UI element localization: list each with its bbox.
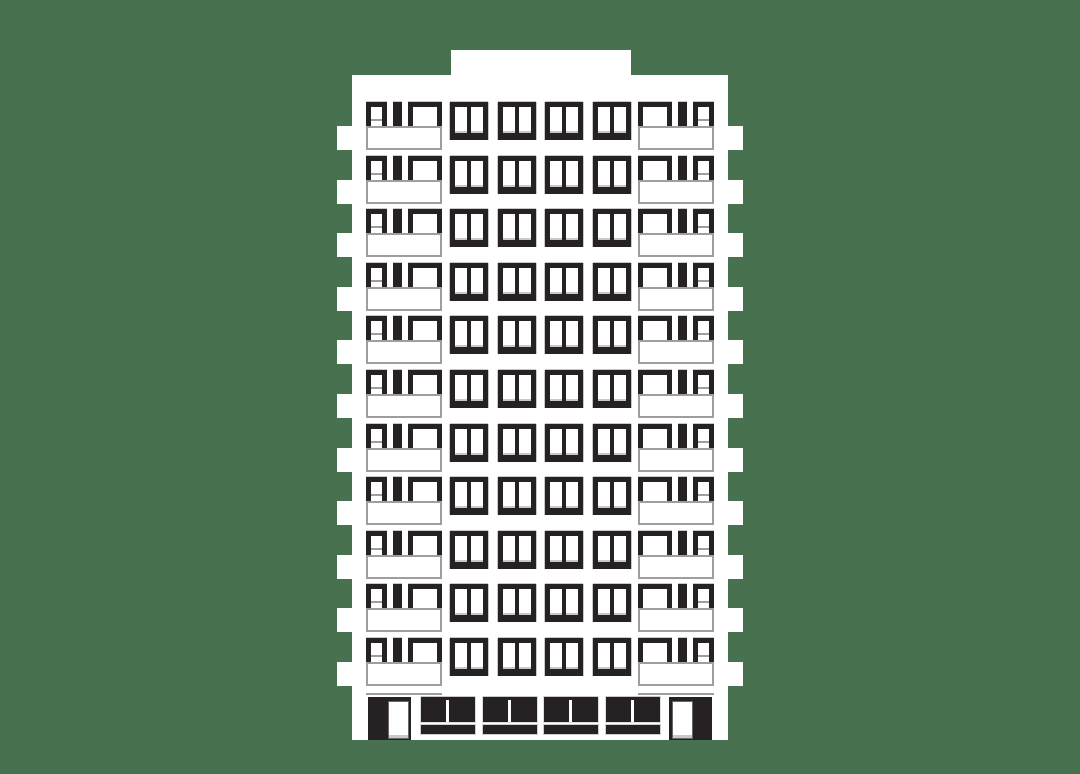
facade-window bbox=[545, 263, 583, 301]
balcony-railing bbox=[366, 448, 442, 472]
storefront-window bbox=[606, 697, 660, 722]
balcony-door bbox=[693, 531, 714, 557]
balcony-pillar bbox=[678, 584, 687, 610]
door-glass-divider bbox=[698, 226, 709, 228]
balcony-unit-right bbox=[638, 263, 714, 313]
balcony-window bbox=[408, 209, 442, 235]
balcony-window bbox=[408, 263, 442, 289]
window-pane-right bbox=[566, 214, 578, 240]
balcony-door-glass bbox=[371, 321, 382, 340]
balcony-railing bbox=[638, 501, 714, 525]
balcony-door bbox=[366, 477, 387, 503]
facade-window bbox=[450, 584, 488, 622]
facade-window bbox=[450, 424, 488, 462]
door-glass-divider bbox=[371, 494, 382, 496]
balcony-door-glass bbox=[371, 375, 382, 394]
door-glass-divider bbox=[371, 119, 382, 121]
balcony-railing bbox=[638, 287, 714, 311]
window-pane-left bbox=[455, 214, 467, 240]
balcony-window-pane bbox=[413, 589, 437, 610]
window-pane-left bbox=[455, 482, 467, 508]
building-facade bbox=[352, 75, 728, 740]
balcony-railing bbox=[366, 180, 442, 204]
balcony-window-pane bbox=[643, 107, 667, 128]
facade-window bbox=[498, 209, 536, 247]
storefront-window-divider bbox=[508, 700, 511, 722]
window-pane-left bbox=[503, 643, 515, 669]
balcony-window bbox=[408, 638, 442, 664]
facade-window bbox=[593, 263, 631, 301]
balcony-door-glass bbox=[698, 161, 709, 180]
facade-window bbox=[593, 316, 631, 354]
side-balcony-right bbox=[728, 448, 743, 472]
balcony-window bbox=[638, 209, 672, 235]
window-pane-left bbox=[598, 589, 610, 615]
facade-window bbox=[545, 638, 583, 676]
window-pane-right bbox=[566, 161, 578, 187]
balcony-window bbox=[408, 531, 442, 557]
balcony-door bbox=[693, 263, 714, 289]
balcony-window bbox=[638, 477, 672, 503]
side-balcony-left bbox=[337, 287, 352, 311]
balcony-window-pane bbox=[643, 589, 667, 610]
balcony-pillar bbox=[678, 209, 687, 235]
facade-window bbox=[593, 370, 631, 408]
balcony-window bbox=[408, 316, 442, 342]
balcony-unit-right bbox=[638, 424, 714, 474]
window-pane-right bbox=[471, 268, 483, 294]
facade-window bbox=[545, 316, 583, 354]
balcony-railing bbox=[366, 394, 442, 418]
balcony-railing bbox=[366, 608, 442, 632]
balcony-unit-right bbox=[638, 638, 714, 688]
balcony-pillar bbox=[393, 156, 402, 182]
window-pane-right bbox=[566, 107, 578, 133]
balcony-window-pane bbox=[643, 375, 667, 396]
facade-window bbox=[498, 156, 536, 194]
balcony-window bbox=[638, 531, 672, 557]
window-pane-left bbox=[455, 536, 467, 562]
balcony-pillar bbox=[678, 370, 687, 396]
side-balcony-left bbox=[337, 608, 352, 632]
balcony-railing bbox=[366, 287, 442, 311]
window-pane-left bbox=[598, 214, 610, 240]
side-balcony-right bbox=[728, 501, 743, 525]
facade-window bbox=[545, 102, 583, 140]
floor-row bbox=[352, 316, 728, 370]
balcony-pillar bbox=[678, 477, 687, 503]
storefront-window-divider bbox=[569, 700, 572, 722]
balcony-window bbox=[638, 638, 672, 664]
rooftop-structure bbox=[451, 50, 631, 76]
facade-window bbox=[545, 477, 583, 515]
balcony-window-pane bbox=[643, 429, 667, 450]
door-glass-divider bbox=[698, 387, 709, 389]
storefront bbox=[544, 697, 598, 740]
door-glass-divider bbox=[371, 280, 382, 282]
window-pane-left bbox=[550, 214, 562, 240]
balcony-door-glass bbox=[698, 214, 709, 233]
balcony-door-glass bbox=[371, 589, 382, 608]
balcony-door-glass bbox=[698, 375, 709, 394]
entrance-left bbox=[368, 697, 411, 740]
balcony-railing bbox=[638, 448, 714, 472]
balcony-door-glass bbox=[371, 643, 382, 662]
balcony-window-pane bbox=[413, 321, 437, 342]
balcony-window bbox=[638, 584, 672, 610]
balcony-unit-left bbox=[366, 102, 442, 152]
balcony-pillar bbox=[393, 316, 402, 342]
balcony-door bbox=[693, 477, 714, 503]
window-pane-left bbox=[503, 536, 515, 562]
balcony-pillar bbox=[678, 263, 687, 289]
balcony-pillar bbox=[393, 477, 402, 503]
facade-window bbox=[593, 638, 631, 676]
balcony-window-pane bbox=[413, 268, 437, 289]
balcony-door bbox=[366, 102, 387, 128]
side-balcony-left bbox=[337, 662, 352, 686]
window-pane-right bbox=[471, 536, 483, 562]
door-glass-divider bbox=[371, 441, 382, 443]
window-pane-right bbox=[471, 321, 483, 347]
door-glass-divider bbox=[698, 173, 709, 175]
balcony-window-pane bbox=[643, 643, 667, 664]
storefront-sign-band bbox=[421, 725, 475, 734]
door-glass-divider bbox=[698, 280, 709, 282]
window-pane-right bbox=[471, 214, 483, 240]
window-pane-left bbox=[503, 107, 515, 133]
facade-window bbox=[545, 531, 583, 569]
balcony-window bbox=[408, 102, 442, 128]
balcony-window bbox=[638, 316, 672, 342]
balcony-door bbox=[693, 209, 714, 235]
balcony-railing bbox=[366, 662, 442, 686]
window-pane-right bbox=[614, 161, 626, 187]
facade-window bbox=[593, 209, 631, 247]
balcony-unit-left bbox=[366, 424, 442, 474]
balcony-window-pane bbox=[413, 107, 437, 128]
balcony-unit-right bbox=[638, 102, 714, 152]
balcony-door bbox=[366, 531, 387, 557]
window-pane-left bbox=[455, 589, 467, 615]
side-balcony-right bbox=[728, 233, 743, 257]
floor-row bbox=[352, 102, 728, 156]
window-pane-right bbox=[471, 589, 483, 615]
window-pane-right bbox=[519, 107, 531, 133]
window-pane-right bbox=[614, 268, 626, 294]
balcony-window bbox=[638, 263, 672, 289]
balcony-door bbox=[366, 263, 387, 289]
balcony-railing bbox=[366, 126, 442, 150]
entrance-door bbox=[389, 702, 408, 738]
facade-window bbox=[498, 638, 536, 676]
balcony-door-glass bbox=[371, 107, 382, 126]
balcony-window-pane bbox=[643, 536, 667, 557]
window-pane-right bbox=[566, 375, 578, 401]
facade-window bbox=[545, 424, 583, 462]
balcony-unit-right bbox=[638, 370, 714, 420]
door-glass-divider bbox=[371, 548, 382, 550]
window-pane-left bbox=[550, 429, 562, 455]
balcony-door-glass bbox=[698, 589, 709, 608]
side-balcony-left bbox=[337, 394, 352, 418]
window-pane-right bbox=[519, 161, 531, 187]
balcony-unit-right bbox=[638, 209, 714, 259]
floor-row bbox=[352, 370, 728, 424]
door-glass-divider bbox=[371, 173, 382, 175]
balcony-window bbox=[408, 424, 442, 450]
storefront-window bbox=[544, 697, 598, 722]
facade-window bbox=[593, 477, 631, 515]
floor-row bbox=[352, 477, 728, 531]
window-pane-left bbox=[455, 107, 467, 133]
floor-row bbox=[352, 424, 728, 478]
balcony-door bbox=[366, 424, 387, 450]
storefront-sign-band bbox=[606, 725, 660, 734]
window-pane-right bbox=[614, 536, 626, 562]
door-glass-divider bbox=[698, 601, 709, 603]
side-balcony-left bbox=[337, 180, 352, 204]
balcony-railing bbox=[638, 233, 714, 257]
balcony-window-pane bbox=[643, 482, 667, 503]
facade-window bbox=[450, 638, 488, 676]
balcony-window bbox=[408, 370, 442, 396]
window-pane-right bbox=[614, 321, 626, 347]
storefront-window-divider bbox=[446, 700, 449, 722]
balcony-unit-left bbox=[366, 584, 442, 634]
window-pane-right bbox=[566, 429, 578, 455]
window-pane-left bbox=[550, 107, 562, 133]
balcony-window-pane bbox=[643, 321, 667, 342]
side-balcony-right bbox=[728, 608, 743, 632]
window-pane-left bbox=[455, 375, 467, 401]
storefront bbox=[483, 697, 537, 740]
balcony-window-pane bbox=[643, 214, 667, 235]
window-pane-left bbox=[550, 321, 562, 347]
facade-window bbox=[498, 424, 536, 462]
facade-window bbox=[498, 370, 536, 408]
balcony-unit-left bbox=[366, 209, 442, 259]
door-glass-divider bbox=[698, 119, 709, 121]
facade-window bbox=[593, 531, 631, 569]
balcony-pillar bbox=[393, 209, 402, 235]
window-pane-left bbox=[598, 429, 610, 455]
balcony-window-pane bbox=[413, 536, 437, 557]
window-pane-right bbox=[614, 375, 626, 401]
window-pane-right bbox=[519, 643, 531, 669]
balcony-unit-right bbox=[638, 316, 714, 366]
balcony-unit-right bbox=[638, 477, 714, 527]
floor-row bbox=[352, 584, 728, 638]
facade-window bbox=[593, 584, 631, 622]
balcony-window-pane bbox=[643, 161, 667, 182]
balcony-unit-right bbox=[638, 584, 714, 634]
balcony-pillar bbox=[678, 638, 687, 664]
side-balcony-left bbox=[337, 233, 352, 257]
facade-window bbox=[450, 209, 488, 247]
balcony-unit-left bbox=[366, 263, 442, 313]
window-pane-right bbox=[519, 429, 531, 455]
window-pane-left bbox=[598, 161, 610, 187]
door-glass-divider bbox=[371, 655, 382, 657]
side-balcony-left bbox=[337, 555, 352, 579]
floor-row bbox=[352, 531, 728, 585]
balcony-window bbox=[408, 156, 442, 182]
balcony-railing bbox=[638, 662, 714, 686]
balcony-railing bbox=[638, 608, 714, 632]
window-pane-right bbox=[566, 321, 578, 347]
entrance-right bbox=[669, 697, 712, 740]
balcony-unit-left bbox=[366, 156, 442, 206]
window-pane-left bbox=[550, 482, 562, 508]
balcony-door bbox=[693, 316, 714, 342]
window-pane-left bbox=[503, 161, 515, 187]
facade-window bbox=[545, 370, 583, 408]
window-pane-right bbox=[519, 375, 531, 401]
balcony-window-pane bbox=[413, 375, 437, 396]
storefront bbox=[421, 697, 475, 740]
balcony-unit-left bbox=[366, 477, 442, 527]
window-pane-left bbox=[550, 536, 562, 562]
window-pane-left bbox=[503, 214, 515, 240]
balcony-door-glass bbox=[698, 536, 709, 555]
window-pane-right bbox=[614, 589, 626, 615]
window-pane-right bbox=[519, 589, 531, 615]
facade-window bbox=[545, 156, 583, 194]
window-pane-right bbox=[566, 482, 578, 508]
window-pane-right bbox=[471, 429, 483, 455]
balcony-door bbox=[366, 156, 387, 182]
window-pane-right bbox=[471, 375, 483, 401]
balcony-unit-left bbox=[366, 316, 442, 366]
entrance-door bbox=[673, 702, 692, 738]
balcony-unit-left bbox=[366, 370, 442, 420]
balcony-railing bbox=[638, 394, 714, 418]
storefront-window-divider bbox=[631, 700, 634, 722]
window-pane-left bbox=[455, 321, 467, 347]
facade-window bbox=[498, 477, 536, 515]
side-balcony-right bbox=[728, 287, 743, 311]
balcony-door bbox=[693, 370, 714, 396]
balcony-door bbox=[693, 156, 714, 182]
balcony-window bbox=[638, 102, 672, 128]
balcony-unit-left bbox=[366, 531, 442, 581]
window-pane-left bbox=[598, 482, 610, 508]
door-glass-divider bbox=[698, 494, 709, 496]
window-pane-left bbox=[550, 643, 562, 669]
balcony-door-glass bbox=[698, 268, 709, 287]
balcony-window-pane bbox=[413, 482, 437, 503]
balcony-railing bbox=[638, 126, 714, 150]
window-pane-left bbox=[455, 643, 467, 669]
balcony-railing bbox=[366, 233, 442, 257]
facade-window bbox=[450, 370, 488, 408]
window-pane-right bbox=[566, 589, 578, 615]
storefront-window bbox=[421, 697, 475, 722]
facade-window bbox=[498, 531, 536, 569]
balcony-pillar bbox=[393, 263, 402, 289]
window-pane-left bbox=[455, 161, 467, 187]
ground-floor bbox=[352, 695, 728, 740]
facade-window bbox=[450, 156, 488, 194]
balcony-window-pane bbox=[643, 268, 667, 289]
floor-row bbox=[352, 263, 728, 317]
facade-window bbox=[498, 316, 536, 354]
window-pane-left bbox=[550, 375, 562, 401]
floor-row bbox=[352, 156, 728, 210]
balcony-window-pane bbox=[413, 643, 437, 664]
side-balcony-left bbox=[337, 126, 352, 150]
window-pane-right bbox=[471, 482, 483, 508]
window-pane-right bbox=[471, 643, 483, 669]
side-balcony-right bbox=[728, 340, 743, 364]
window-pane-left bbox=[598, 321, 610, 347]
balcony-door-glass bbox=[698, 429, 709, 448]
floor-slab-line-right bbox=[638, 693, 714, 695]
balcony-door-glass bbox=[371, 214, 382, 233]
balcony-door-glass bbox=[698, 643, 709, 662]
facade-window bbox=[450, 531, 488, 569]
illustration-canvas bbox=[0, 0, 1080, 774]
facade-window bbox=[593, 156, 631, 194]
balcony-pillar bbox=[393, 531, 402, 557]
window-pane-left bbox=[550, 161, 562, 187]
balcony-railing bbox=[638, 340, 714, 364]
balcony-door-glass bbox=[698, 321, 709, 340]
window-pane-left bbox=[598, 107, 610, 133]
balcony-pillar bbox=[393, 638, 402, 664]
side-balcony-right bbox=[728, 555, 743, 579]
window-pane-left bbox=[598, 375, 610, 401]
facade-window bbox=[498, 584, 536, 622]
floor-slab-line-left bbox=[366, 693, 442, 695]
side-balcony-right bbox=[728, 394, 743, 418]
balcony-door-glass bbox=[371, 536, 382, 555]
balcony-pillar bbox=[678, 424, 687, 450]
window-pane-right bbox=[614, 429, 626, 455]
balcony-pillar bbox=[393, 370, 402, 396]
window-pane-left bbox=[503, 268, 515, 294]
balcony-window bbox=[408, 477, 442, 503]
balcony-door bbox=[693, 102, 714, 128]
door-glass-divider bbox=[698, 548, 709, 550]
facade-window bbox=[450, 477, 488, 515]
balcony-door bbox=[366, 638, 387, 664]
floor-row bbox=[352, 209, 728, 263]
door-glass-divider bbox=[698, 655, 709, 657]
facade-window bbox=[545, 209, 583, 247]
window-pane-right bbox=[614, 107, 626, 133]
window-pane-right bbox=[566, 536, 578, 562]
balcony-door bbox=[366, 370, 387, 396]
storefront bbox=[606, 697, 660, 740]
door-glass-divider bbox=[698, 333, 709, 335]
floor-row bbox=[352, 638, 728, 692]
balcony-railing bbox=[366, 340, 442, 364]
side-balcony-right bbox=[728, 180, 743, 204]
window-pane-right bbox=[566, 643, 578, 669]
window-pane-left bbox=[550, 268, 562, 294]
balcony-door bbox=[693, 638, 714, 664]
storefront-sign-band bbox=[483, 725, 537, 734]
balcony-door bbox=[366, 584, 387, 610]
window-pane-left bbox=[455, 429, 467, 455]
balcony-door-glass bbox=[371, 482, 382, 501]
window-pane-left bbox=[598, 643, 610, 669]
side-balcony-left bbox=[337, 448, 352, 472]
window-pane-right bbox=[614, 214, 626, 240]
balcony-door-glass bbox=[698, 482, 709, 501]
